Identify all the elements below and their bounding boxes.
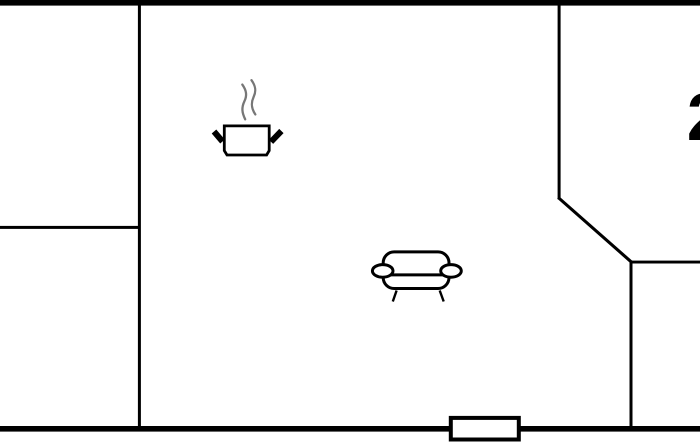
svg-text:2: 2 [687,80,700,155]
